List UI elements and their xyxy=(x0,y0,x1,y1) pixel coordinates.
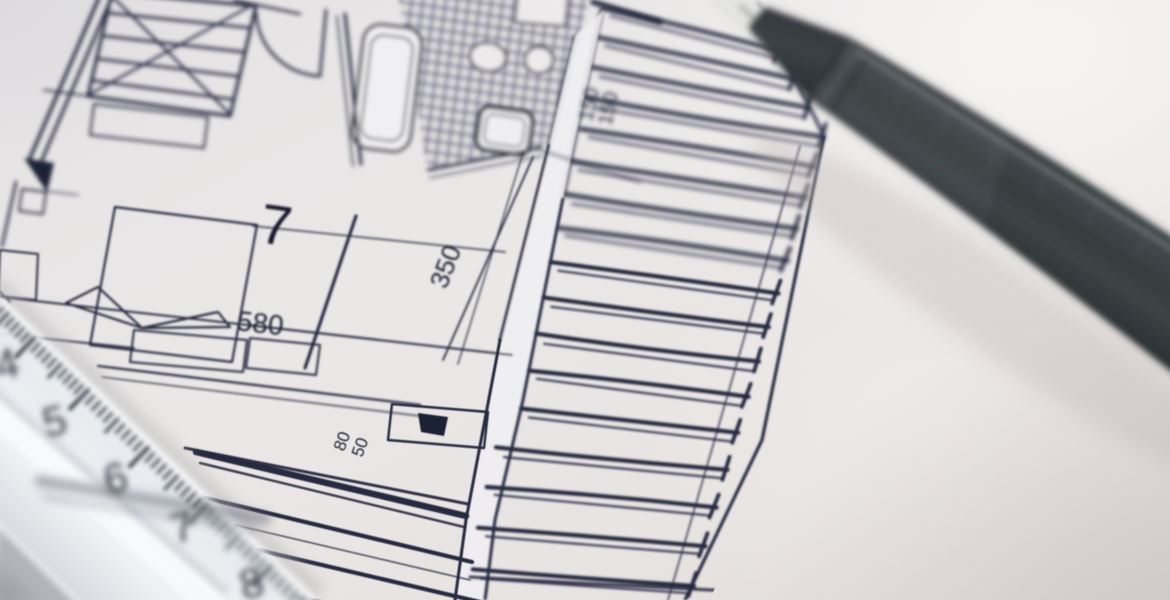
svg-text:580: 580 xyxy=(235,305,285,341)
